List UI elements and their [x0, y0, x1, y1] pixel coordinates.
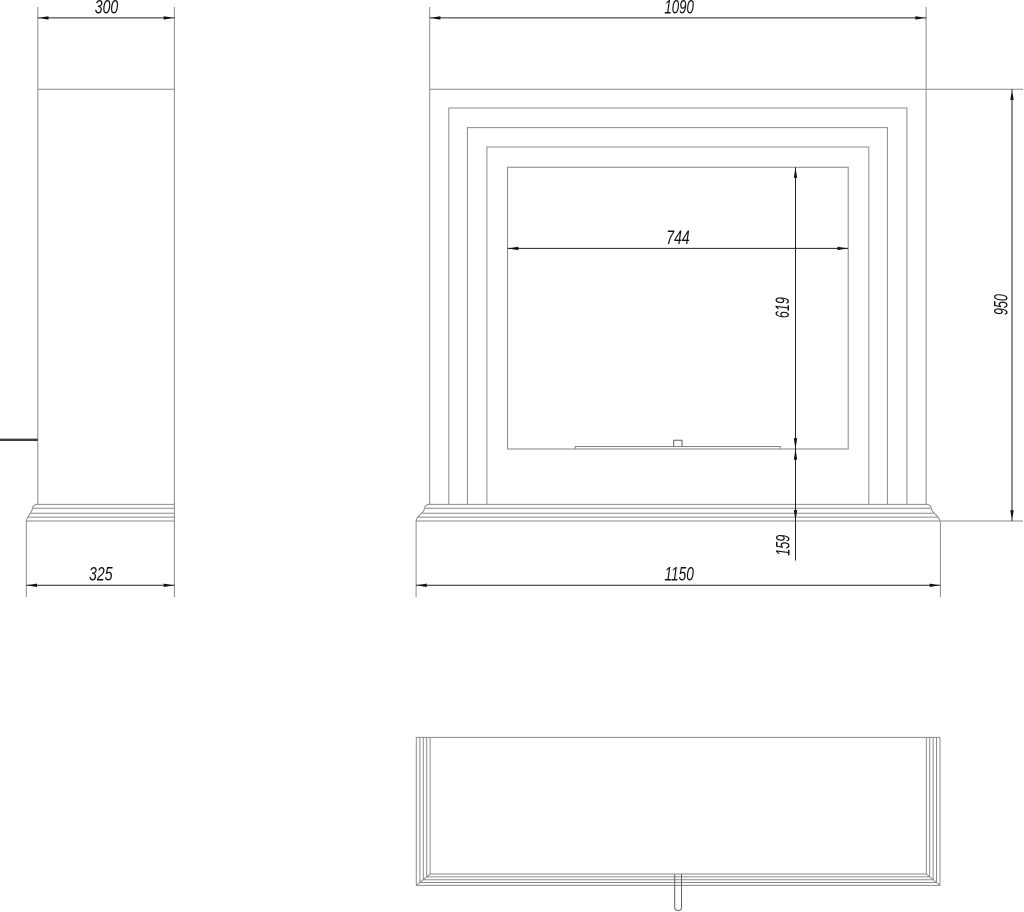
svg-text:950: 950 — [991, 294, 1012, 315]
svg-text:1150: 1150 — [664, 565, 694, 586]
svg-text:300: 300 — [95, 0, 119, 18]
svg-text:325: 325 — [89, 565, 113, 586]
svg-text:159: 159 — [774, 534, 795, 555]
svg-text:744: 744 — [666, 228, 690, 249]
svg-text:619: 619 — [773, 297, 794, 318]
svg-text:1090: 1090 — [664, 0, 694, 18]
